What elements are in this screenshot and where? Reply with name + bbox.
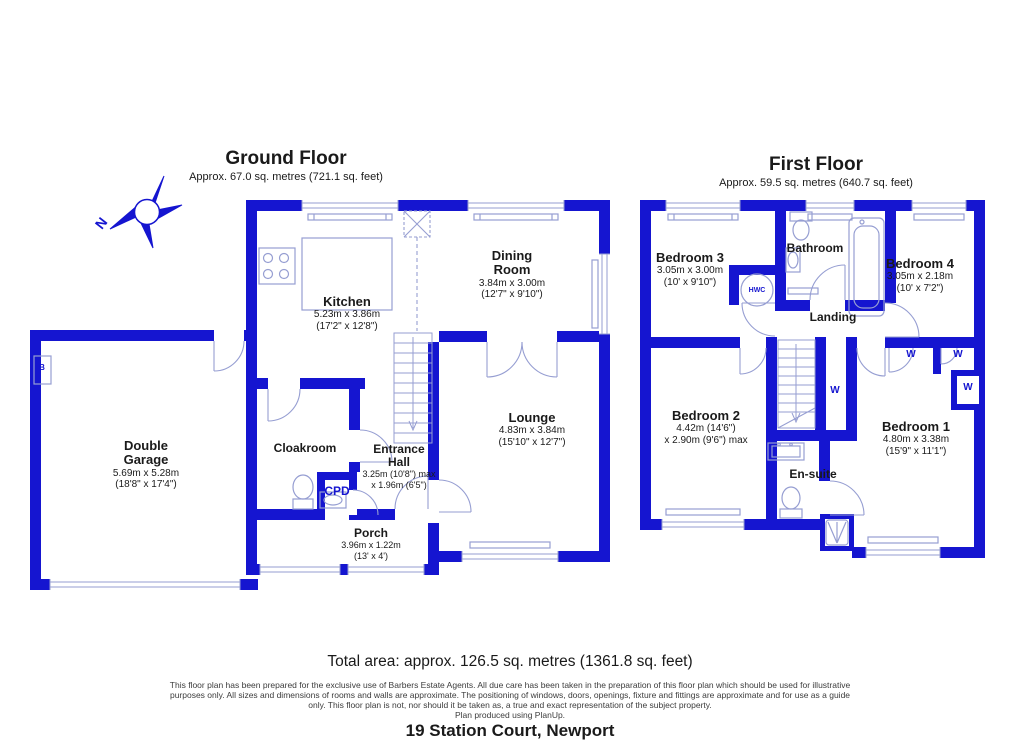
bedroom2-name: Bedroom 2: [664, 409, 747, 423]
lounge-dim-metric: 4.83m x 3.84m: [498, 425, 565, 437]
property-address: 19 Station Court, Newport: [406, 721, 615, 741]
porch-label: Porch 3.96m x 1.22m (13' x 4'): [341, 527, 401, 561]
disclaimer-line-1: This floor plan has been prepared for th…: [170, 680, 850, 690]
bedroom2-dim-metric: 4.42m (14'6"): [664, 423, 747, 435]
porch-name: Porch: [341, 527, 401, 540]
bedroom3-dim-metric: 3.05m x 3.00m: [656, 265, 724, 277]
disclaimer-line-3: only. This floor plan is not, nor should…: [308, 700, 712, 710]
bedroom1-label: Bedroom 1 4.80m x 3.38m (15'9" x 11'1"): [882, 420, 950, 458]
ground-stairs: [394, 333, 432, 443]
landing-label: Landing: [810, 310, 857, 324]
bedroom1-name: Bedroom 1: [882, 420, 950, 434]
floor-plan-drawing: [0, 0, 1020, 742]
lounge-name: Lounge: [498, 411, 565, 425]
kitchen-dim-metric: 5.23m x 3.86m: [314, 309, 380, 321]
lounge-label: Lounge 4.83m x 3.84m (15'10" x 12'7"): [498, 411, 565, 449]
dining-room-dim-metric: 3.84m x 3.00m: [479, 278, 545, 290]
first-floor-title: First Floor: [769, 154, 863, 176]
bedroom3-dim-imperial: (10' x 9'10"): [656, 277, 724, 289]
bedroom4-dim-imperial: (10' x 7'2"): [886, 283, 954, 295]
double-garage-label: Double Garage 5.69m x 5.28m (18'8" x 17'…: [113, 439, 179, 491]
wardrobe-label-4: W: [830, 385, 839, 396]
hwc-label: HWC: [749, 287, 766, 294]
dining-room-label: Dining Room 3.84m x 3.00m (12'7" x 9'10"…: [479, 249, 545, 301]
double-garage-name: Double Garage: [114, 439, 178, 468]
bedroom4-dim-metric: 3.05m x 2.18m: [886, 271, 954, 283]
kitchen-name: Kitchen: [314, 295, 380, 309]
kitchen-dim-imperial: (17'2" x 12'8"): [314, 321, 380, 333]
total-area-text: Total area: approx. 126.5 sq. metres (13…: [327, 653, 692, 671]
kitchen-label: Kitchen 5.23m x 3.86m (17'2" x 12'8"): [314, 295, 380, 333]
disclaimer-line-4: Plan produced using PlanUp.: [455, 710, 565, 720]
wardrobe-label-3: W: [963, 382, 972, 393]
lounge-dim-imperial: (15'10" x 12'7"): [498, 437, 565, 449]
bedroom2-dim-imperial: x 2.90m (9'6") max: [664, 435, 747, 447]
ground-floor-subtitle: Approx. 67.0 sq. metres (721.1 sq. feet): [189, 171, 383, 183]
cpd-label: CPD: [324, 484, 349, 498]
entrance-hall-dim-imperial: x 1.96m (6'5"): [363, 480, 436, 491]
entrance-hall-label: Entrance Hall 3.25m (10'8") max x 1.96m …: [363, 443, 436, 491]
wardrobe-label-2: W: [953, 349, 962, 360]
cloakroom-label: Cloakroom: [274, 441, 337, 455]
bathroom-label: Bathroom: [787, 241, 844, 255]
double-garage-dim-metric: 5.69m x 5.28m: [113, 468, 179, 480]
double-garage-dim-imperial: (18'8" x 17'4"): [113, 479, 179, 491]
bedroom1-dim-metric: 4.80m x 3.38m: [882, 434, 950, 446]
compass-icon: [110, 176, 182, 248]
boiler-label: B: [39, 363, 45, 372]
en-suite-label: En-suite: [789, 467, 836, 481]
disclaimer-line-2: purposes only. All sizes and dimensions …: [170, 690, 850, 700]
first-floor-subtitle: Approx. 59.5 sq. metres (640.7 sq. feet): [719, 177, 913, 189]
wardrobe-label-1: W: [906, 349, 915, 360]
bedroom3-label: Bedroom 3 3.05m x 3.00m (10' x 9'10"): [656, 251, 724, 289]
first-stairs: [778, 340, 815, 428]
entrance-hall-name: Entrance Hall: [367, 443, 431, 469]
bedroom2-label: Bedroom 2 4.42m (14'6") x 2.90m (9'6") m…: [664, 409, 747, 447]
porch-dim-imperial: (13' x 4'): [341, 551, 401, 562]
dining-room-name: Dining Room: [483, 249, 541, 278]
bedroom1-dim-imperial: (15'9" x 11'1"): [882, 446, 950, 458]
entrance-hall-dim-metric: 3.25m (10'8") max: [363, 469, 436, 480]
floor-plan-page: Ground Floor Approx. 67.0 sq. metres (72…: [0, 0, 1020, 742]
bedroom4-name: Bedroom 4: [886, 257, 954, 271]
bedroom3-name: Bedroom 3: [656, 251, 724, 265]
bedroom4-label: Bedroom 4 3.05m x 2.18m (10' x 7'2"): [886, 257, 954, 295]
dining-room-dim-imperial: (12'7" x 9'10"): [479, 289, 545, 301]
ground-floor-title: Ground Floor: [225, 148, 346, 170]
porch-dim-metric: 3.96m x 1.22m: [341, 540, 401, 551]
